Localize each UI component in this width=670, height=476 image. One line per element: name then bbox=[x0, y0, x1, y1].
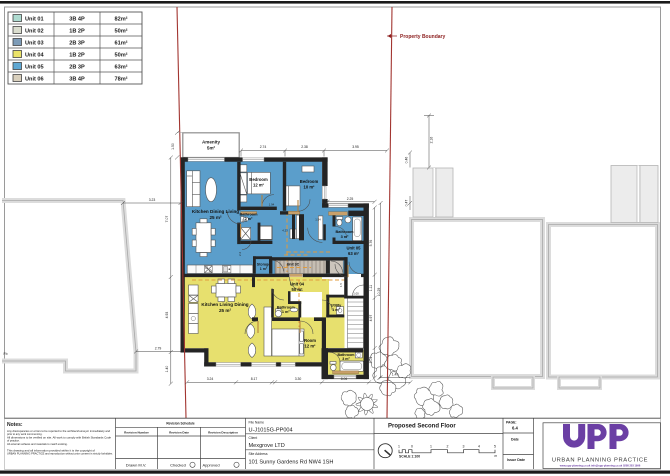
svg-text:1 m²: 1 m² bbox=[282, 310, 291, 314]
svg-text:2.79: 2.79 bbox=[155, 346, 162, 350]
svg-text:2.25: 2.25 bbox=[347, 197, 354, 201]
svg-text:1.54: 1.54 bbox=[315, 218, 321, 222]
svg-text:1B 2P: 1B 2P bbox=[69, 29, 85, 35]
svg-text:Storage: Storage bbox=[257, 263, 270, 267]
svg-text:U-J1015G-PP004: U-J1015G-PP004 bbox=[249, 428, 293, 434]
svg-text:Site Address: Site Address bbox=[249, 452, 268, 456]
svg-text:2.16: 2.16 bbox=[430, 137, 434, 144]
svg-text:Drawn M.V.: Drawn M.V. bbox=[126, 462, 147, 467]
svg-text:1.94: 1.94 bbox=[269, 203, 275, 207]
svg-text:Notes:: Notes: bbox=[7, 422, 23, 428]
svg-text:Proposed Second Floor: Proposed Second Floor bbox=[388, 424, 456, 430]
svg-text:5: 5 bbox=[494, 444, 496, 448]
svg-text:78m²: 78m² bbox=[114, 76, 127, 83]
svg-text:Unit 03: Unit 03 bbox=[25, 41, 44, 47]
svg-text:12 m²: 12 m² bbox=[253, 183, 265, 188]
svg-text:PAGE:: PAGE: bbox=[506, 421, 517, 425]
svg-text:1: 1 bbox=[398, 444, 400, 448]
svg-text:0.46: 0.46 bbox=[405, 157, 409, 164]
svg-text:URBAN PLANNING PRACTICE and re: URBAN PLANNING PRACTICE and reproduction… bbox=[7, 452, 113, 456]
svg-text:10.29: 10.29 bbox=[377, 288, 381, 297]
svg-text:www.upp-planning.co.uk info@: www.upp-planning.co.uk info@upp-planning… bbox=[560, 464, 641, 468]
svg-text:File Name: File Name bbox=[249, 421, 265, 425]
svg-text:SCALE 1:100: SCALE 1:100 bbox=[399, 455, 420, 459]
svg-text:Unit 04: Unit 04 bbox=[290, 282, 305, 287]
svg-text:Bedroom: Bedroom bbox=[249, 177, 268, 182]
svg-text:Unit 3C: Unit 3C bbox=[287, 263, 300, 267]
svg-text:63 m²: 63 m² bbox=[348, 251, 360, 256]
svg-text:3 m²: 3 m² bbox=[342, 357, 350, 361]
svg-text:12 m²: 12 m² bbox=[305, 344, 317, 349]
svg-text:1B 2P: 1B 2P bbox=[69, 53, 85, 59]
svg-text:0.47: 0.47 bbox=[405, 200, 409, 207]
svg-text:Utility: Utility bbox=[331, 304, 342, 308]
svg-text:All dimensions to be verified: All dimensions to be verified on site. A… bbox=[7, 435, 112, 439]
svg-text:0: 0 bbox=[411, 444, 413, 448]
svg-text:1 m²: 1 m² bbox=[332, 308, 341, 312]
svg-text:3.30: 3.30 bbox=[295, 377, 302, 381]
svg-text:Kitchen Living Dining: Kitchen Living Dining bbox=[201, 302, 248, 307]
svg-text:Revision Description: Revision Description bbox=[208, 430, 238, 434]
svg-text:Issue Date: Issue Date bbox=[507, 458, 525, 462]
svg-text:Amenity: Amenity bbox=[202, 140, 221, 145]
svg-text:50m²: 50m² bbox=[114, 52, 127, 59]
svg-text:Unit 01: Unit 01 bbox=[25, 17, 44, 23]
svg-text:Date: Date bbox=[511, 438, 519, 442]
svg-text:Unit 05: Unit 05 bbox=[25, 65, 44, 71]
svg-text:All external surfaces and mate: All external surfaces and materials to m… bbox=[7, 442, 68, 446]
svg-text:25 m²: 25 m² bbox=[219, 308, 231, 313]
svg-text:Bathroom: Bathroom bbox=[336, 230, 355, 234]
svg-text:Unit 02: Unit 02 bbox=[25, 29, 44, 35]
svg-text:m: m bbox=[495, 454, 498, 458]
svg-text:6.4: 6.4 bbox=[512, 426, 518, 431]
svg-text:Mexgrove LTD: Mexgrove LTD bbox=[249, 443, 285, 449]
svg-text:Bedroom: Bedroom bbox=[300, 179, 319, 184]
svg-text:4.97: 4.97 bbox=[369, 315, 373, 322]
svg-text:4: 4 bbox=[478, 444, 480, 448]
svg-text:4.93: 4.93 bbox=[165, 312, 169, 319]
svg-text:63m²: 63m² bbox=[114, 64, 127, 71]
svg-text:2.38: 2.38 bbox=[301, 145, 308, 149]
svg-text:2.74: 2.74 bbox=[260, 145, 267, 149]
svg-text:101 Sunny Gardens Rd NW4 1SH: 101 Sunny Gardens Rd NW4 1SH bbox=[249, 460, 334, 466]
svg-text:2B 3P: 2B 3P bbox=[69, 41, 85, 47]
svg-text:3.23: 3.23 bbox=[149, 198, 156, 202]
svg-text:Checked: Checked bbox=[170, 462, 186, 467]
svg-text:50 m²: 50 m² bbox=[292, 287, 304, 292]
svg-text:25 m²: 25 m² bbox=[209, 215, 221, 220]
svg-text:3B 4P: 3B 4P bbox=[69, 17, 85, 23]
svg-text:5m²: 5m² bbox=[207, 146, 216, 151]
svg-text:Client: Client bbox=[249, 436, 258, 440]
svg-text:3: 3 bbox=[463, 444, 465, 448]
svg-text:1.40: 1.40 bbox=[165, 366, 169, 373]
svg-text:1.49: 1.49 bbox=[392, 372, 399, 376]
svg-text:1.5: 1.5 bbox=[339, 283, 343, 287]
svg-text:3.04: 3.04 bbox=[369, 357, 373, 364]
svg-text:3.24: 3.24 bbox=[207, 377, 214, 381]
svg-text:5.76: 5.76 bbox=[369, 240, 373, 247]
svg-text:Kitchen Dining Living: Kitchen Dining Living bbox=[192, 209, 239, 214]
svg-text:1.50: 1.50 bbox=[171, 143, 175, 150]
svg-text:Bathroom: Bathroom bbox=[277, 305, 296, 309]
svg-text:82m²: 82m² bbox=[114, 16, 127, 23]
svg-text:Property Boundary: Property Boundary bbox=[400, 34, 446, 40]
svg-text:61m²: 61m² bbox=[114, 40, 127, 47]
svg-text:URBAN PLANNING PRACTICE: URBAN PLANNING PRACTICE bbox=[552, 458, 648, 464]
svg-text:2B 3P: 2B 3P bbox=[69, 65, 85, 71]
svg-text:1 m²: 1 m² bbox=[260, 267, 268, 271]
svg-text:1: 1 bbox=[430, 444, 432, 448]
svg-text:2: 2 bbox=[447, 444, 449, 448]
svg-text:Fb: Fb bbox=[4, 352, 8, 356]
svg-text:Bathroom: Bathroom bbox=[240, 213, 259, 217]
svg-text:Revision Number: Revision Number bbox=[124, 430, 150, 434]
svg-text:7.07: 7.07 bbox=[165, 216, 169, 223]
svg-text:50m²: 50m² bbox=[114, 28, 127, 35]
svg-text:Unit 05: Unit 05 bbox=[347, 246, 362, 251]
svg-text:Approved: Approved bbox=[202, 462, 219, 467]
svg-text:1.00: 1.00 bbox=[353, 292, 359, 296]
svg-text:Unit 04: Unit 04 bbox=[25, 53, 45, 59]
svg-text:Room: Room bbox=[304, 338, 316, 343]
svg-text:1.98: 1.98 bbox=[242, 219, 248, 223]
svg-text:Unit 06: Unit 06 bbox=[25, 77, 44, 83]
svg-text:8.06: 8.06 bbox=[341, 377, 348, 381]
svg-text:2.4: 2.4 bbox=[238, 252, 242, 256]
svg-text:Revision Date: Revision Date bbox=[169, 430, 189, 434]
svg-text:3.95: 3.95 bbox=[352, 145, 359, 149]
svg-text:3B 4P: 3B 4P bbox=[69, 77, 85, 83]
svg-text:Revision Schedule: Revision Schedule bbox=[166, 422, 195, 426]
svg-text:3 m²: 3 m² bbox=[341, 235, 350, 239]
svg-text:8.17: 8.17 bbox=[251, 377, 258, 381]
svg-text:4.23: 4.23 bbox=[282, 229, 288, 233]
svg-text:10 m²: 10 m² bbox=[304, 185, 316, 190]
svg-text:1.11: 1.11 bbox=[369, 285, 373, 291]
